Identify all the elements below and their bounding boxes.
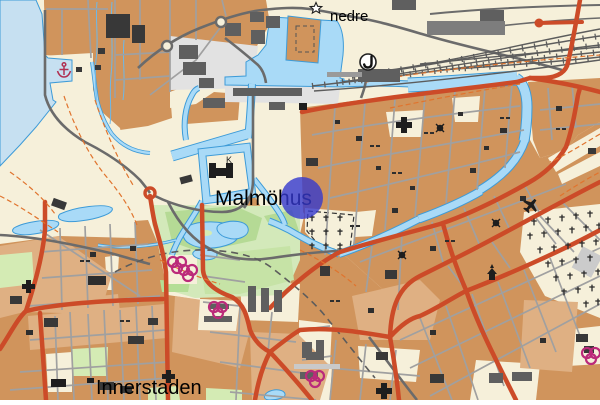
svg-text:Innerstaden: Innerstaden — [96, 377, 202, 399]
svg-text:K: K — [226, 155, 232, 165]
svg-text:nedre: nedre — [330, 8, 368, 25]
